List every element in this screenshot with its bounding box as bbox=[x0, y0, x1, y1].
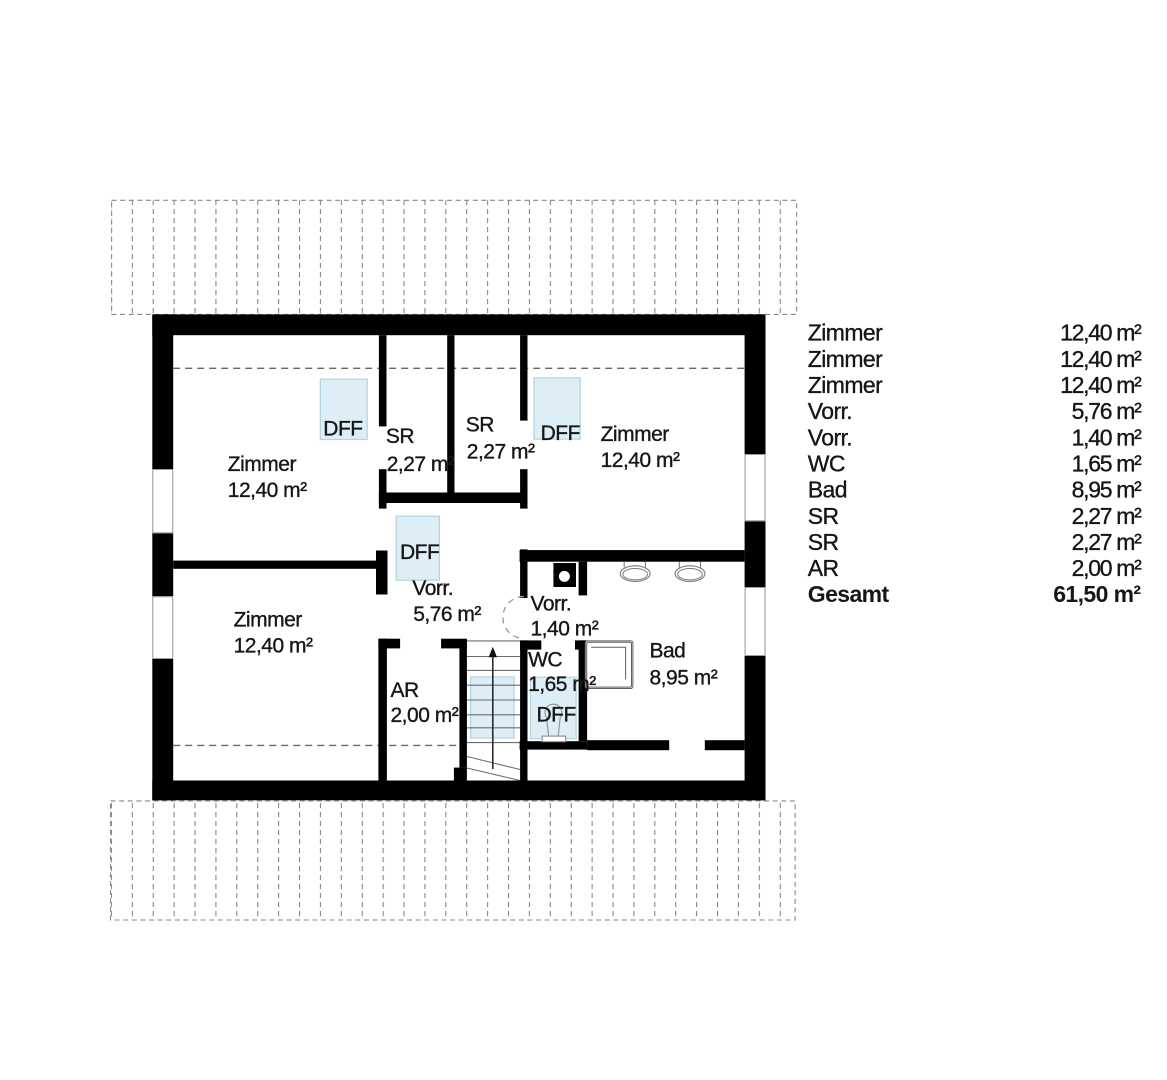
svg-text:SR: SR bbox=[386, 425, 415, 448]
svg-text:AR: AR bbox=[808, 555, 839, 581]
svg-text:2,27 m²: 2,27 m² bbox=[387, 453, 455, 476]
svg-text:AR: AR bbox=[391, 679, 420, 702]
svg-text:Zimmer: Zimmer bbox=[234, 609, 303, 632]
svg-text:Zimmer: Zimmer bbox=[808, 320, 883, 346]
svg-text:DFF: DFF bbox=[400, 541, 439, 564]
svg-text:Vorr.: Vorr. bbox=[808, 398, 852, 424]
svg-text:12,40 m²: 12,40 m² bbox=[1060, 320, 1142, 346]
svg-text:Zimmer: Zimmer bbox=[601, 423, 670, 446]
svg-text:Bad: Bad bbox=[808, 477, 847, 503]
svg-text:2,27 m²: 2,27 m² bbox=[467, 441, 535, 464]
svg-text:SR: SR bbox=[808, 503, 839, 529]
svg-text:Vorr.: Vorr. bbox=[808, 424, 852, 450]
svg-text:Bad: Bad bbox=[650, 640, 686, 663]
svg-text:WC: WC bbox=[528, 649, 562, 672]
svg-text:Gesamt: Gesamt bbox=[808, 581, 890, 607]
svg-text:1,40 m²: 1,40 m² bbox=[531, 618, 599, 641]
svg-text:2,00 m²: 2,00 m² bbox=[1072, 555, 1143, 581]
svg-text:SR: SR bbox=[466, 414, 495, 437]
svg-text:8,95 m²: 8,95 m² bbox=[1072, 477, 1143, 503]
svg-text:Vorr.: Vorr. bbox=[531, 593, 572, 616]
svg-text:5,76 m²: 5,76 m² bbox=[1072, 398, 1143, 424]
svg-text:Zimmer: Zimmer bbox=[228, 453, 297, 476]
svg-text:12,40 m²: 12,40 m² bbox=[601, 449, 680, 472]
svg-text:1,65 m²: 1,65 m² bbox=[1072, 451, 1143, 477]
svg-text:DFF: DFF bbox=[537, 704, 576, 727]
svg-text:61,50 m²: 61,50 m² bbox=[1053, 581, 1141, 607]
svg-text:12,40 m²: 12,40 m² bbox=[1060, 346, 1142, 372]
svg-text:12,40 m²: 12,40 m² bbox=[234, 635, 313, 658]
svg-text:2,00 m²: 2,00 m² bbox=[391, 704, 459, 727]
svg-text:1,40 m²: 1,40 m² bbox=[1072, 424, 1143, 450]
svg-text:Vorr.: Vorr. bbox=[412, 577, 453, 600]
svg-text:DFF: DFF bbox=[541, 422, 580, 445]
svg-text:2,27 m²: 2,27 m² bbox=[1072, 503, 1143, 529]
svg-text:2,27 m²: 2,27 m² bbox=[1072, 529, 1143, 555]
svg-text:SR: SR bbox=[808, 529, 839, 555]
svg-text:8,95 m²: 8,95 m² bbox=[650, 667, 718, 690]
svg-text:12,40 m²: 12,40 m² bbox=[228, 479, 307, 502]
svg-text:DFF: DFF bbox=[323, 418, 362, 441]
svg-text:1,65 m²: 1,65 m² bbox=[528, 673, 596, 696]
svg-text:Zimmer: Zimmer bbox=[808, 372, 883, 398]
svg-text:WC: WC bbox=[808, 451, 845, 477]
svg-text:12,40 m²: 12,40 m² bbox=[1060, 372, 1142, 398]
svg-text:Zimmer: Zimmer bbox=[808, 346, 883, 372]
svg-text:5,76 m²: 5,76 m² bbox=[413, 603, 481, 626]
